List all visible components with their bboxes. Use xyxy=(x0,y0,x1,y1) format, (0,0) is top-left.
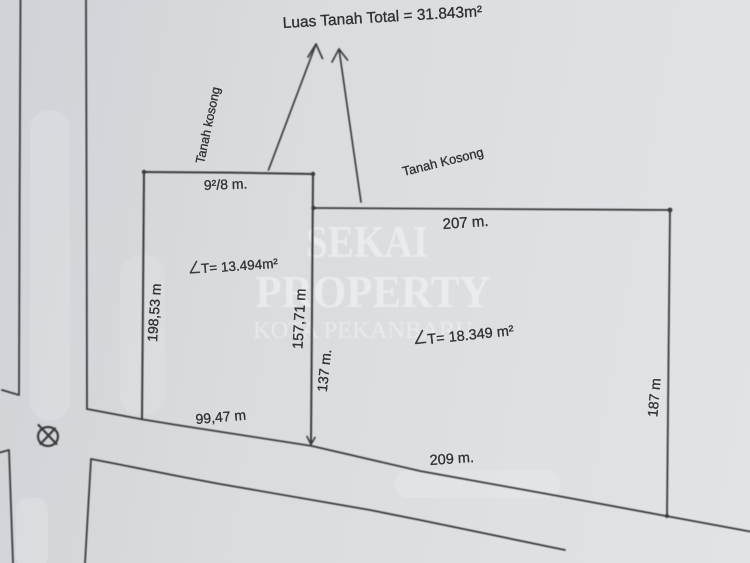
svg-text:SEKAI: SEKAI xyxy=(306,217,428,267)
svg-text:Luas Tanah Total = 31.843m²: Luas Tanah Total = 31.843m² xyxy=(282,3,482,32)
svg-text:207 m.: 207 m. xyxy=(442,213,489,233)
svg-text:Tanah kosong: Tanah kosong xyxy=(193,86,223,165)
svg-text:Tanah Kosong: Tanah Kosong xyxy=(401,144,485,179)
svg-text:9²/8 m.: 9²/8 m. xyxy=(204,175,248,193)
svg-text:157,71 m: 157,71 m xyxy=(290,288,309,349)
svg-text:137 m.: 137 m. xyxy=(314,348,334,392)
svg-text:PROPERTY: PROPERTY xyxy=(256,266,491,317)
svg-text:187 m: 187 m xyxy=(644,377,663,417)
svg-text:99,47 m: 99,47 m xyxy=(195,407,247,427)
svg-text:209 m.: 209 m. xyxy=(429,450,474,469)
